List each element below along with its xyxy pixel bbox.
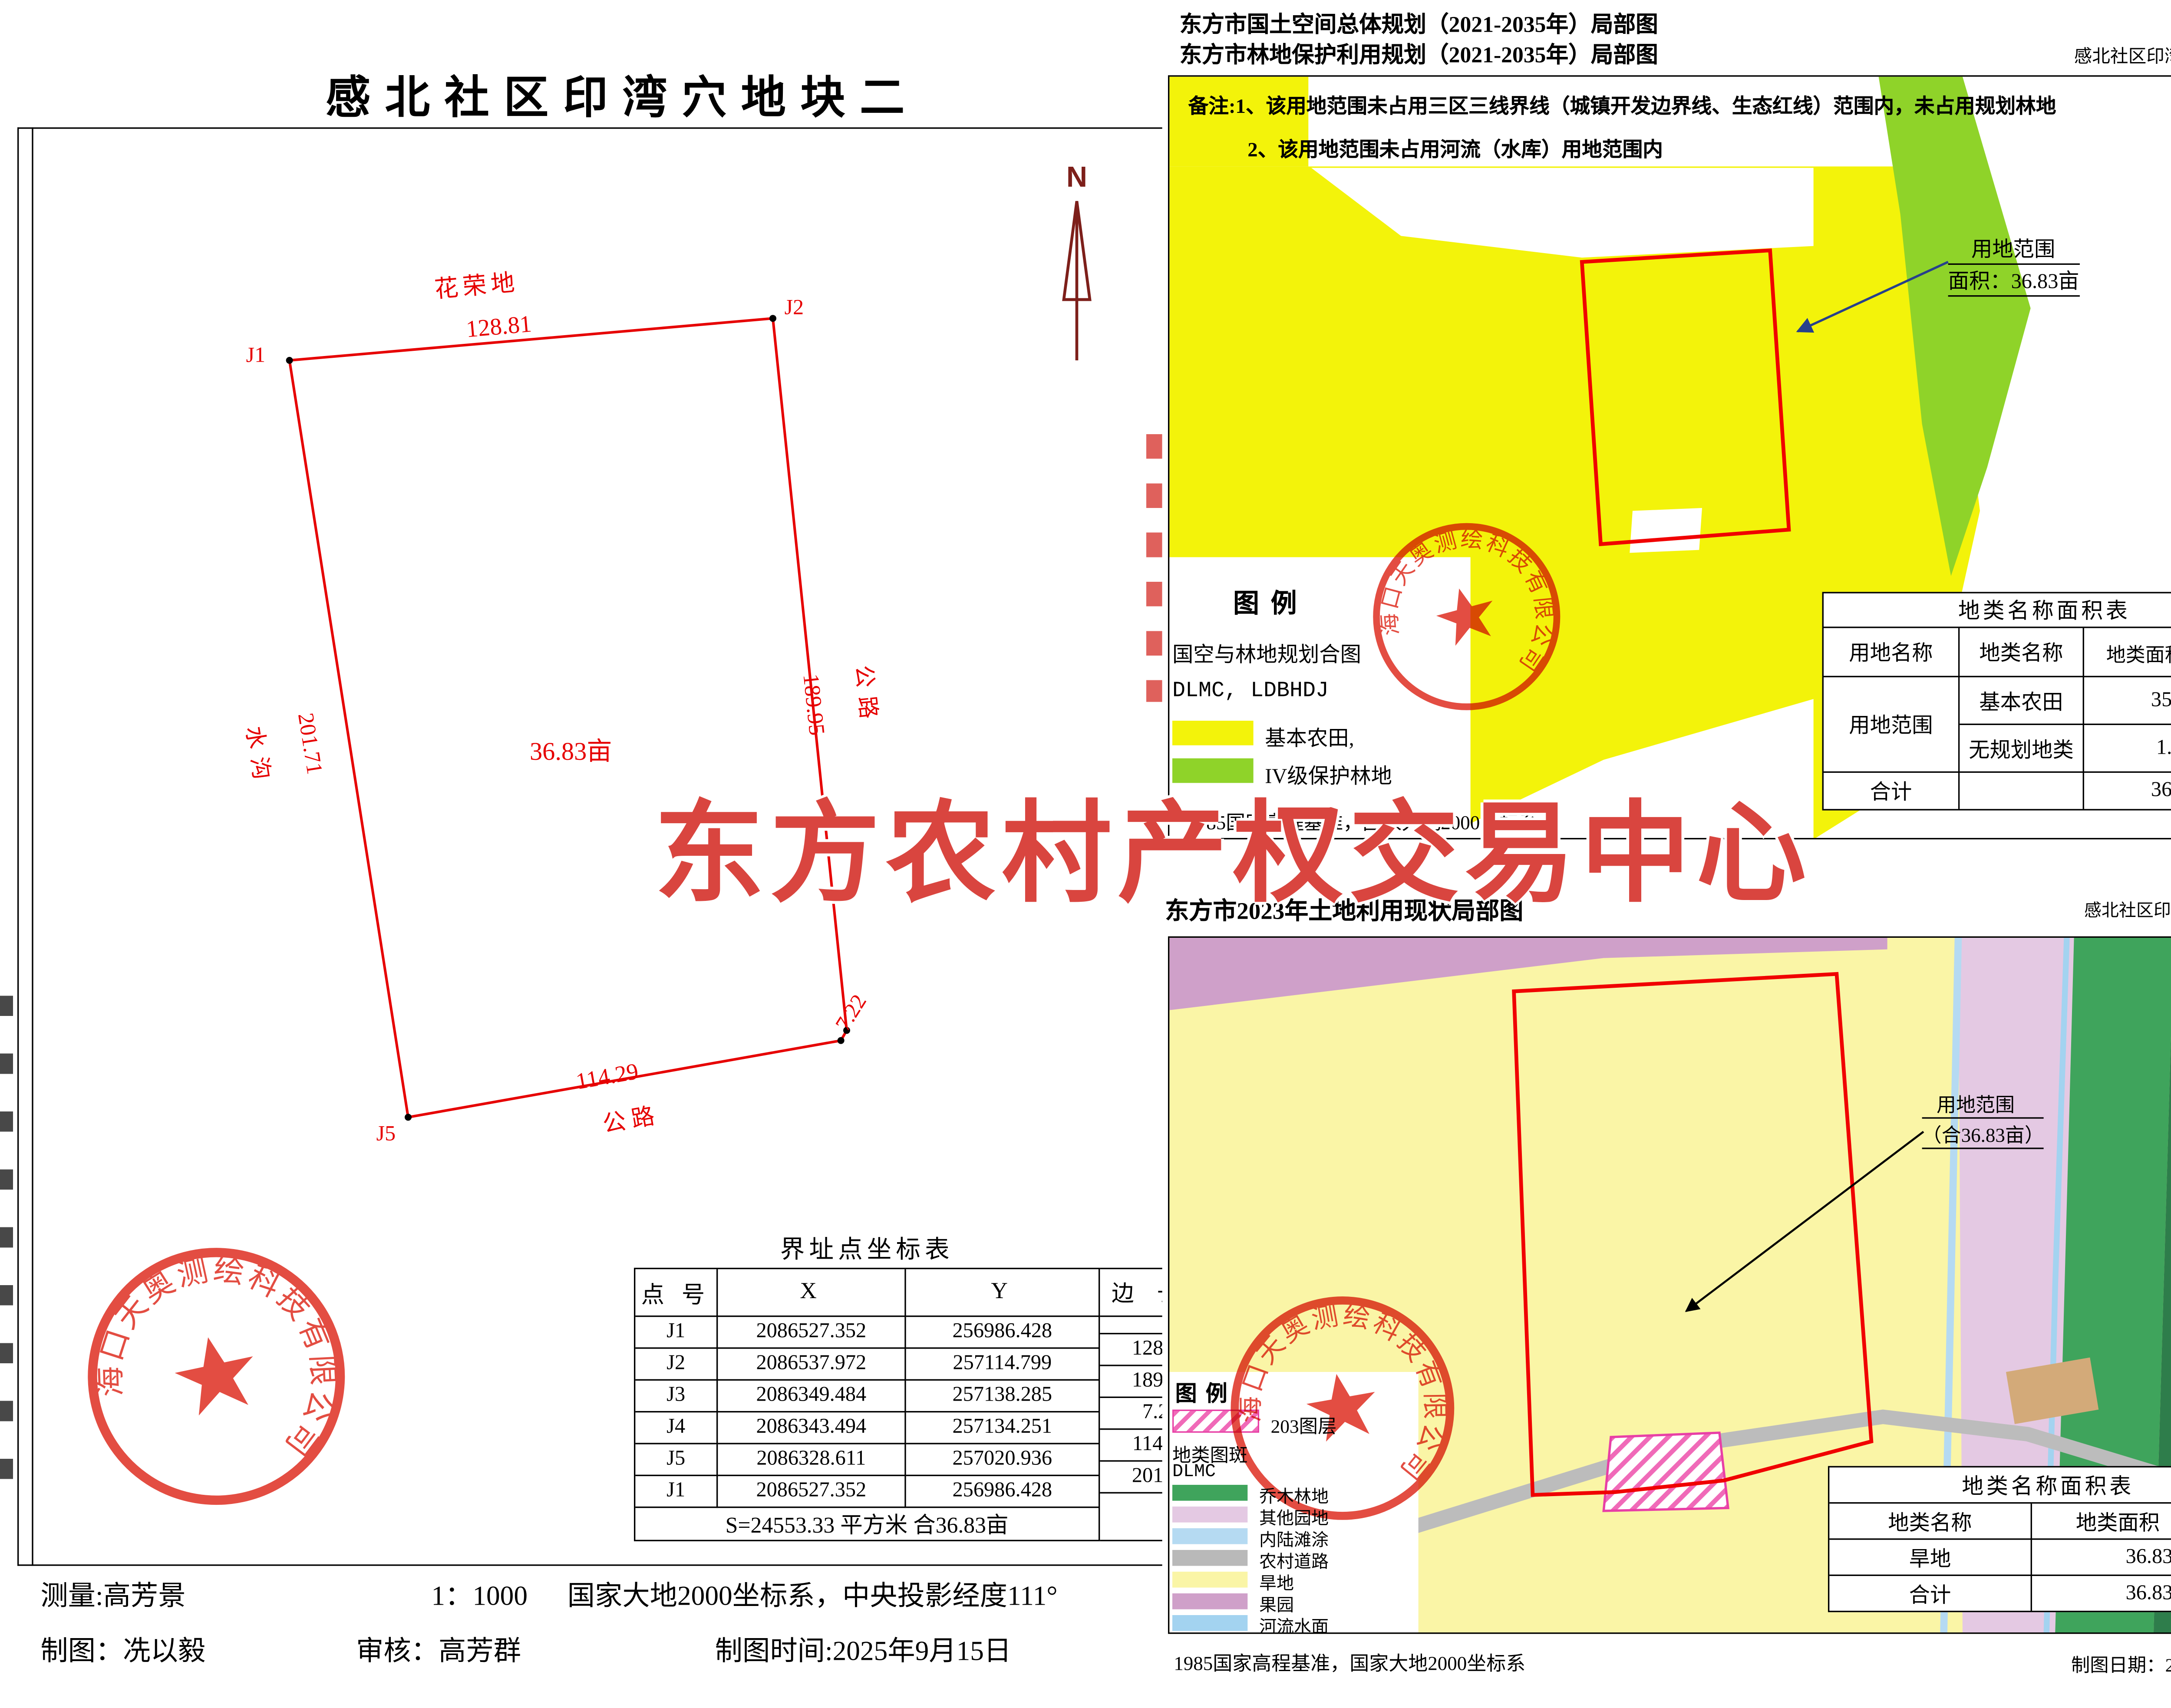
callout-arrow bbox=[1777, 251, 1958, 346]
parcel-callout: 用地范围 面积：36.83亩 bbox=[1948, 233, 2079, 297]
cell: J5 bbox=[635, 1444, 718, 1476]
td-total-val: 36.83 bbox=[2084, 773, 2171, 809]
callout-arrow bbox=[1669, 1123, 1937, 1326]
edge-top-name: 花荣地 bbox=[433, 263, 520, 305]
legend-label: 旱地 bbox=[1259, 1570, 1294, 1595]
coordinate-table-title: 界址点坐标表 bbox=[634, 1229, 1100, 1265]
edge-right-name: 公路 bbox=[848, 663, 887, 729]
cell: 2086328.611 bbox=[718, 1444, 906, 1476]
cell: 2086349.484 bbox=[718, 1381, 906, 1412]
planning-map-panel: 东方市国土空间总体规划（2021-2035年）局部图 东方市林地保护利用规划（2… bbox=[1162, 0, 2171, 844]
company-seal: 海口天奥测绘科技有限公司 bbox=[1208, 1274, 1478, 1550]
th: 地类名称 bbox=[1829, 1504, 2032, 1540]
cell: J1 bbox=[635, 1317, 718, 1349]
datum-label: 国家大地2000坐标系，中央投影经度111° bbox=[567, 1575, 1058, 1614]
legend-label: 农村道路 bbox=[1259, 1549, 1329, 1573]
legend-swatch bbox=[1172, 1572, 1247, 1588]
cell: 2086527.352 bbox=[718, 1476, 906, 1508]
cell: J1 bbox=[635, 1476, 718, 1508]
north-label: N bbox=[2162, 161, 2171, 194]
cell: 257138.285 bbox=[906, 1381, 1099, 1412]
note-line2: 2、该用地范围未占用河流（水库）用地范围内 bbox=[1247, 135, 1663, 164]
legend-swatch bbox=[1172, 1615, 1247, 1631]
landuse-map-box: N 用地范围 （合36.83亩） 图例 203图层 地类图斑 DLM bbox=[1168, 936, 2171, 1634]
td: 基本农田 bbox=[1960, 677, 2084, 725]
north-arrow-left: N bbox=[1048, 162, 1105, 370]
th: 用地名称 bbox=[1824, 628, 1960, 677]
north-label: N bbox=[1048, 162, 1105, 195]
parcel-callout: 用地范围 （合36.83亩） bbox=[1922, 1088, 2044, 1149]
north-needle-icon bbox=[1051, 195, 1103, 363]
company-seal: 海口天奥测绘科技有限公司 bbox=[59, 1218, 376, 1541]
legend-swatch bbox=[1172, 1550, 1247, 1566]
legend-label: 河流水面 bbox=[1259, 1614, 1329, 1634]
drafter-label: 制图：冼以毅 bbox=[40, 1629, 205, 1668]
legend-swatch bbox=[1172, 1593, 1247, 1609]
cell: 2086343.494 bbox=[718, 1412, 906, 1444]
landuse-map-panel: 东方市2023年土地利用现状局部图 感北社区印湾穴地块二 bbox=[1162, 880, 2171, 1708]
note-line1: 备注:1、该用地范围未占用三区三线界线（城镇开发边界线、生态红线）范围内，未占用… bbox=[1188, 91, 2056, 120]
planning-map-box: 备注:1、该用地范围未占用三区三线界线（城镇开发边界线、生态红线）范围内，未占用… bbox=[1168, 75, 2171, 839]
cell: J2 bbox=[635, 1349, 718, 1381]
cell: 256986.428 bbox=[906, 1317, 1099, 1349]
north-arrow-planning: N bbox=[2162, 161, 2171, 291]
watermark-text: 东方农村产权交易中心 bbox=[654, 764, 1957, 923]
legend-swatch bbox=[1172, 1485, 1247, 1501]
map-date-label: 制图时间:2025年9月15日 bbox=[715, 1629, 1012, 1668]
parcel-area-label: 36.83亩 bbox=[530, 732, 612, 768]
callout-line1: 用地范围 bbox=[1948, 233, 2079, 265]
td: 旱地 bbox=[1829, 1540, 2032, 1576]
td: 无规划地类 bbox=[1960, 725, 2084, 773]
td-empty bbox=[1960, 773, 2084, 809]
cell: 257020.936 bbox=[906, 1444, 1099, 1476]
legend-label: 果园 bbox=[1259, 1592, 1294, 1617]
scale-label: 1：1000 bbox=[431, 1575, 528, 1614]
cell: J4 bbox=[635, 1412, 718, 1444]
legend-title: 图例 bbox=[1177, 583, 1365, 621]
col-header-x: X bbox=[718, 1269, 906, 1317]
cell: 257114.799 bbox=[906, 1349, 1099, 1381]
datum-note: 1985国家高程基准，国家大地2000坐标系 bbox=[1174, 1647, 1525, 1676]
th: 地类面积（亩） bbox=[2084, 628, 2171, 677]
panel-title-line1: 东方市国土空间总体规划（2021-2035年）局部图 bbox=[1180, 7, 1658, 39]
legend-swatch bbox=[1172, 1528, 1247, 1544]
callout-line2: （合36.83亩） bbox=[1922, 1119, 2044, 1149]
col-header-y: Y bbox=[906, 1269, 1099, 1317]
vertex-j2: J2 bbox=[785, 297, 804, 321]
document-page: 感北社区印湾穴地块二 N 花荣地 128.81 J1 J2 J5 36.83亩 … bbox=[0, 0, 2171, 1708]
checker-label: 审核：高芳群 bbox=[356, 1629, 521, 1668]
cell: 2086537.972 bbox=[718, 1349, 906, 1381]
cell: 256986.428 bbox=[906, 1476, 1099, 1508]
cell: 257134.251 bbox=[906, 1412, 1099, 1444]
td: 35.65 bbox=[2084, 677, 2171, 725]
th: 地类名称 bbox=[1960, 628, 2084, 677]
td-total-val: 36.83 bbox=[2032, 1576, 2171, 1611]
hatched-plot-203 bbox=[1604, 1433, 1728, 1511]
coordinate-table: 界址点坐标表 点 号 X Y J1 2086527.352 256986.428… bbox=[634, 1229, 1221, 1265]
vertex-j5: J5 bbox=[376, 1123, 396, 1148]
td: 1.18 bbox=[2084, 725, 2171, 773]
cell: 2086527.352 bbox=[718, 1317, 906, 1349]
cell: J3 bbox=[635, 1381, 718, 1412]
panel-title-line2: 东方市林地保护利用规划（2021-2035年）局部图 bbox=[1180, 38, 1658, 69]
area-summary: S=24553.33 平方米 合36.83亩 bbox=[635, 1508, 1099, 1538]
col-header-point: 点 号 bbox=[635, 1269, 718, 1317]
th: 地类面积（亩） bbox=[2032, 1504, 2171, 1540]
legend-swatch bbox=[1172, 1507, 1247, 1523]
edge-top-length: 128.81 bbox=[465, 310, 533, 345]
table-title: 地类名称面积表 bbox=[1829, 1467, 2171, 1504]
callout-line1: 用地范围 bbox=[1922, 1088, 2044, 1119]
clipped-red-watermark-strip bbox=[1146, 434, 1162, 702]
td-total-label: 合计 bbox=[1829, 1576, 2032, 1611]
table-title: 地类名称面积表 bbox=[1824, 594, 2171, 628]
td: 36.83 bbox=[2032, 1540, 2171, 1576]
area-table-landuse: 地类名称面积表 地类名称 地类面积（亩） 旱地 36.83 合计 36.83 bbox=[1828, 1466, 2171, 1612]
map-date: 制图日期：2025年9月 bbox=[2071, 1650, 2171, 1677]
legend-label-farmland: 基本农田, bbox=[1265, 722, 1354, 752]
legend-swatch-farmland bbox=[1172, 721, 1254, 745]
legend-codes: DLMC, LDBHDJ bbox=[1172, 679, 1329, 703]
legend-sub2: DLMC bbox=[1172, 1462, 1216, 1482]
surveyor-label: 测量:高芳景 bbox=[40, 1575, 185, 1614]
callout-line2: 面积：36.83亩 bbox=[1948, 265, 2079, 297]
panel-subtitle: 感北社区印湾穴地块二 bbox=[2023, 40, 2171, 68]
coordinate-table-grid: 点 号 X Y J1 2086527.352 256986.428 J2 208… bbox=[634, 1268, 1100, 1541]
vertex-j1: J1 bbox=[246, 344, 265, 369]
legend-subtitle: 国空与林地规划合图 bbox=[1172, 638, 1361, 669]
td-group: 用地范围 bbox=[1824, 677, 1960, 773]
panel-subtitle: 感北社区印湾穴地块二 bbox=[2026, 897, 2171, 922]
